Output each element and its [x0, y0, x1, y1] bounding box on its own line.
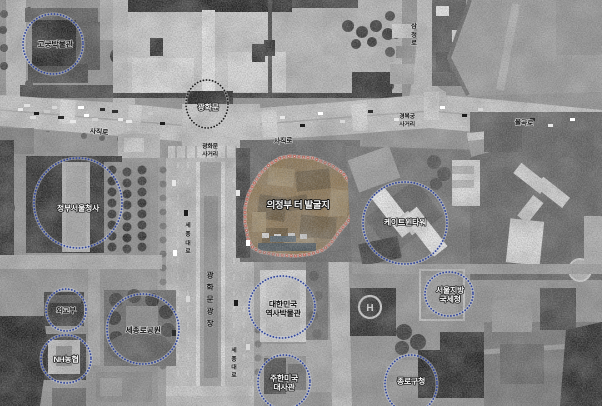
svg-text:광화문: 광화문: [202, 142, 218, 150]
svg-text:삼: 삼: [411, 22, 417, 30]
svg-text:국세청: 국세청: [439, 295, 460, 304]
svg-text:고궁박물관: 고궁박물관: [37, 40, 73, 49]
svg-text:서울지방: 서울지방: [436, 286, 465, 295]
svg-text:경복궁: 경복궁: [399, 112, 415, 120]
svg-text:정부서울청사: 정부서울청사: [57, 204, 100, 213]
svg-text:대사관: 대사관: [273, 383, 295, 392]
svg-text:종로구청: 종로구청: [397, 377, 425, 386]
svg-text:로: 로: [231, 372, 237, 379]
svg-text:사거리: 사거리: [202, 150, 218, 158]
svg-text:사거리: 사거리: [399, 120, 415, 128]
svg-text:문: 문: [206, 295, 214, 304]
svg-text:대: 대: [231, 363, 237, 371]
svg-text:율곡로: 율곡로: [514, 118, 534, 127]
svg-text:청: 청: [411, 31, 417, 39]
svg-text:종: 종: [185, 231, 191, 238]
svg-text:NH농협: NH농협: [53, 355, 78, 364]
svg-text:케이트윈타워: 케이트윈타워: [384, 218, 426, 227]
svg-text:사직로: 사직로: [274, 136, 294, 145]
svg-text:종: 종: [231, 356, 237, 363]
svg-text:대한민국: 대한민국: [269, 300, 298, 309]
svg-text:역사박물관: 역사박물관: [265, 309, 301, 318]
svg-text:로: 로: [411, 39, 417, 47]
svg-text:광화문: 광화문: [197, 103, 219, 112]
svg-text:화: 화: [206, 283, 214, 292]
svg-text:주한미국: 주한미국: [270, 374, 299, 383]
svg-text:대: 대: [185, 239, 191, 247]
svg-text:광: 광: [206, 271, 214, 280]
svg-text:로: 로: [185, 248, 191, 255]
svg-text:외교부: 외교부: [56, 306, 76, 315]
svg-text:세: 세: [185, 221, 191, 229]
svg-text:의정부 터 발굴지: 의정부 터 발굴지: [267, 199, 330, 211]
svg-text:광: 광: [206, 307, 214, 316]
svg-text:장: 장: [206, 319, 214, 328]
svg-text:세: 세: [231, 346, 237, 354]
svg-text:세종로공원: 세종로공원: [125, 326, 160, 335]
svg-text:사직로: 사직로: [89, 127, 109, 137]
